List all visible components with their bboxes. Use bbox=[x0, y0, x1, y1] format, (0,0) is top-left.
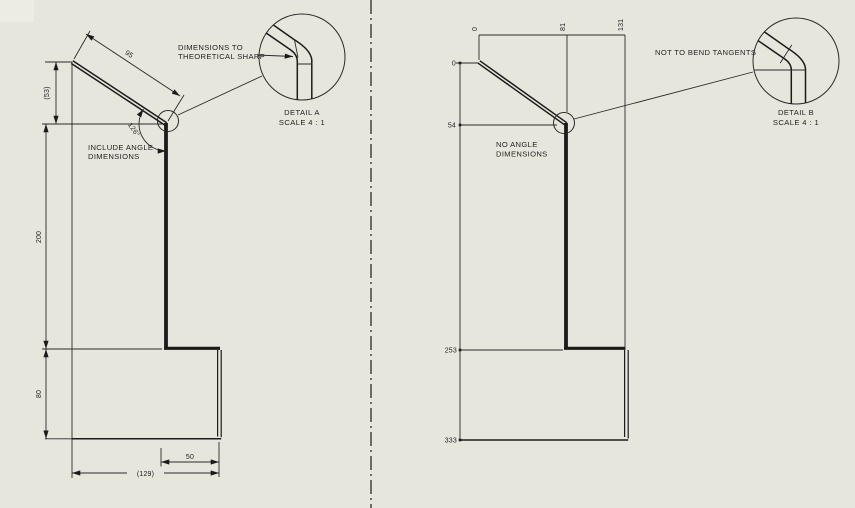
ordinate-y-333: 333 bbox=[445, 438, 457, 445]
ordinate-y-253: 253 bbox=[445, 348, 457, 355]
detail-b-leader bbox=[574, 72, 753, 119]
note-include-angle-line1: INCLUDE ANGLE bbox=[88, 143, 153, 152]
dim-flange-height-ref: (53) bbox=[44, 86, 51, 99]
dim-flange-width: 50 bbox=[186, 454, 194, 461]
detail-a-view: DETAIL A SCALE 4 : 1 bbox=[256, 14, 345, 127]
ordinate-x-131: 131 bbox=[618, 19, 625, 31]
dim-web-height: 200 bbox=[36, 231, 43, 243]
sheet-corner-patch bbox=[0, 0, 34, 22]
note-no-angle-line2: DIMENSIONS bbox=[496, 150, 548, 159]
left-part-outline bbox=[71, 61, 221, 439]
ordinate-y-0: 0 bbox=[452, 61, 456, 68]
callout-theoretical-sharp-line1: DIMENSIONS TO bbox=[178, 43, 243, 52]
detail-a-scale: SCALE 4 : 1 bbox=[279, 118, 325, 127]
ordinate-x-0: 0 bbox=[472, 27, 479, 31]
ordinate-y-54: 54 bbox=[448, 123, 456, 130]
ordinate-x-81: 81 bbox=[560, 23, 567, 31]
callout-bend-tangents: NOT TO BEND TANGENTS bbox=[655, 48, 756, 57]
detail-a-leader bbox=[178, 76, 262, 115]
dim-flange-length: 95 bbox=[123, 50, 134, 60]
note-no-angle-line1: NO ANGLE bbox=[496, 140, 538, 149]
detail-b-title: DETAIL B bbox=[778, 108, 814, 117]
dim-overall-width: (129) bbox=[137, 471, 154, 478]
right-view: 0 81 131 0 54 253 333 NOT TO BEND TANGEN… bbox=[445, 18, 839, 445]
left-view: (53) 200 80 95 126° 50 (129) DIMENSIONS … bbox=[36, 14, 345, 478]
callout-theoretical-sharp-line2: THEORETICAL SHARP bbox=[178, 52, 265, 61]
right-part-outline bbox=[461, 61, 629, 440]
note-include-angle-line2: DIMENSIONS bbox=[88, 152, 140, 161]
detail-b-view: DETAIL B SCALE 4 : 1 bbox=[750, 18, 839, 127]
drawing-sheet: (53) 200 80 95 126° 50 (129) DIMENSIONS … bbox=[0, 0, 855, 508]
right-ordinate-lines bbox=[456, 35, 625, 441]
detail-a-title: DETAIL A bbox=[284, 108, 320, 117]
detail-b-boundary-circle bbox=[554, 113, 575, 134]
detail-b-scale: SCALE 4 : 1 bbox=[773, 118, 819, 127]
dim-base-height: 80 bbox=[36, 390, 43, 398]
drawing-canvas: (53) 200 80 95 126° 50 (129) DIMENSIONS … bbox=[0, 0, 855, 508]
